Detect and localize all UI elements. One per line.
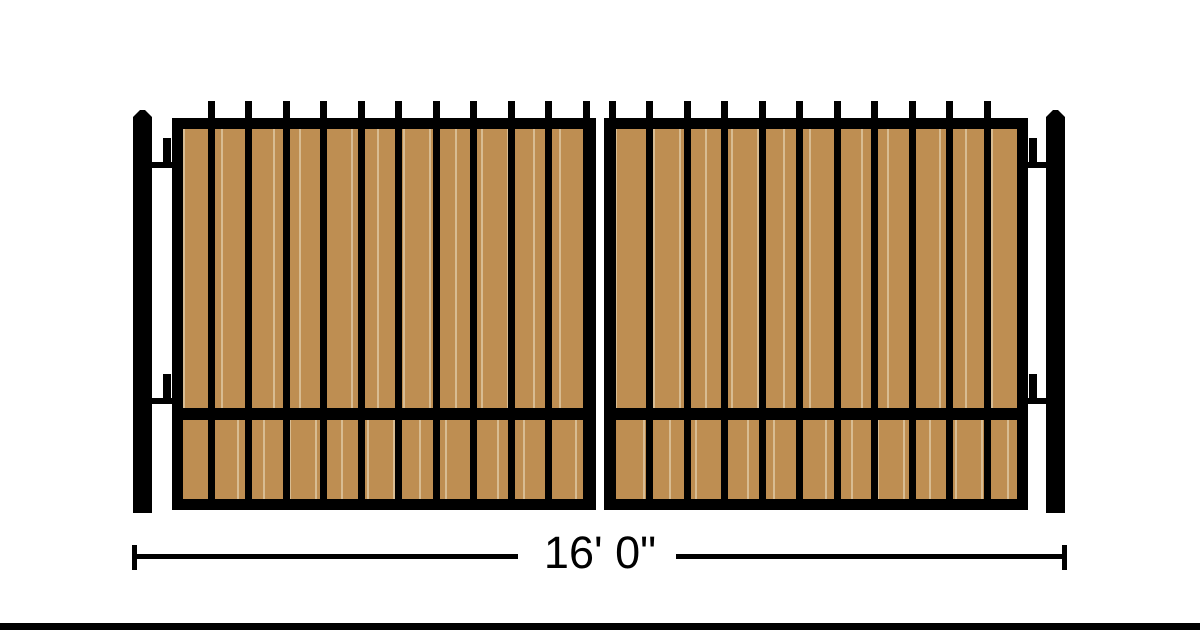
left-top-hinge-bracket <box>163 138 171 168</box>
bottom-border-bar <box>0 623 1200 630</box>
picket <box>320 101 327 505</box>
picket <box>609 101 616 505</box>
gate-leaf-left <box>172 118 596 510</box>
picket <box>508 101 515 505</box>
picket <box>796 101 803 505</box>
picket <box>358 101 365 505</box>
right-gate-post <box>1046 110 1065 513</box>
left-gate-post <box>133 110 152 513</box>
bottom-cross-rail <box>183 408 585 420</box>
gate-diagram: 16' 0" <box>0 0 1200 630</box>
dimension-line-right <box>676 554 1065 559</box>
picket <box>984 101 991 505</box>
picket <box>721 101 728 505</box>
picket <box>545 101 552 505</box>
picket <box>909 101 916 505</box>
picket <box>834 101 841 505</box>
right-bottom-hinge-bracket <box>1029 374 1037 404</box>
picket <box>646 101 653 505</box>
dimension-line-left <box>134 554 518 559</box>
gate-leaf-right <box>604 118 1028 510</box>
picket <box>759 101 766 505</box>
picket <box>395 101 402 505</box>
wood-infill-lower <box>183 420 585 499</box>
picket <box>583 101 590 505</box>
right-top-hinge-bracket <box>1029 138 1037 168</box>
picket <box>245 101 252 505</box>
bottom-cross-rail <box>615 408 1017 420</box>
picket <box>208 101 215 505</box>
picket <box>283 101 290 505</box>
picket <box>433 101 440 505</box>
left-bottom-hinge-bracket <box>163 374 171 404</box>
picket <box>684 101 691 505</box>
picket <box>871 101 878 505</box>
wood-infill-upper <box>183 129 585 408</box>
picket <box>470 101 477 505</box>
wood-infill-upper <box>615 129 1017 408</box>
wood-infill-lower <box>615 420 1017 499</box>
dimension-label: 16' 0" <box>544 528 656 578</box>
dimension-tick-right <box>1062 545 1067 570</box>
picket <box>946 101 953 505</box>
